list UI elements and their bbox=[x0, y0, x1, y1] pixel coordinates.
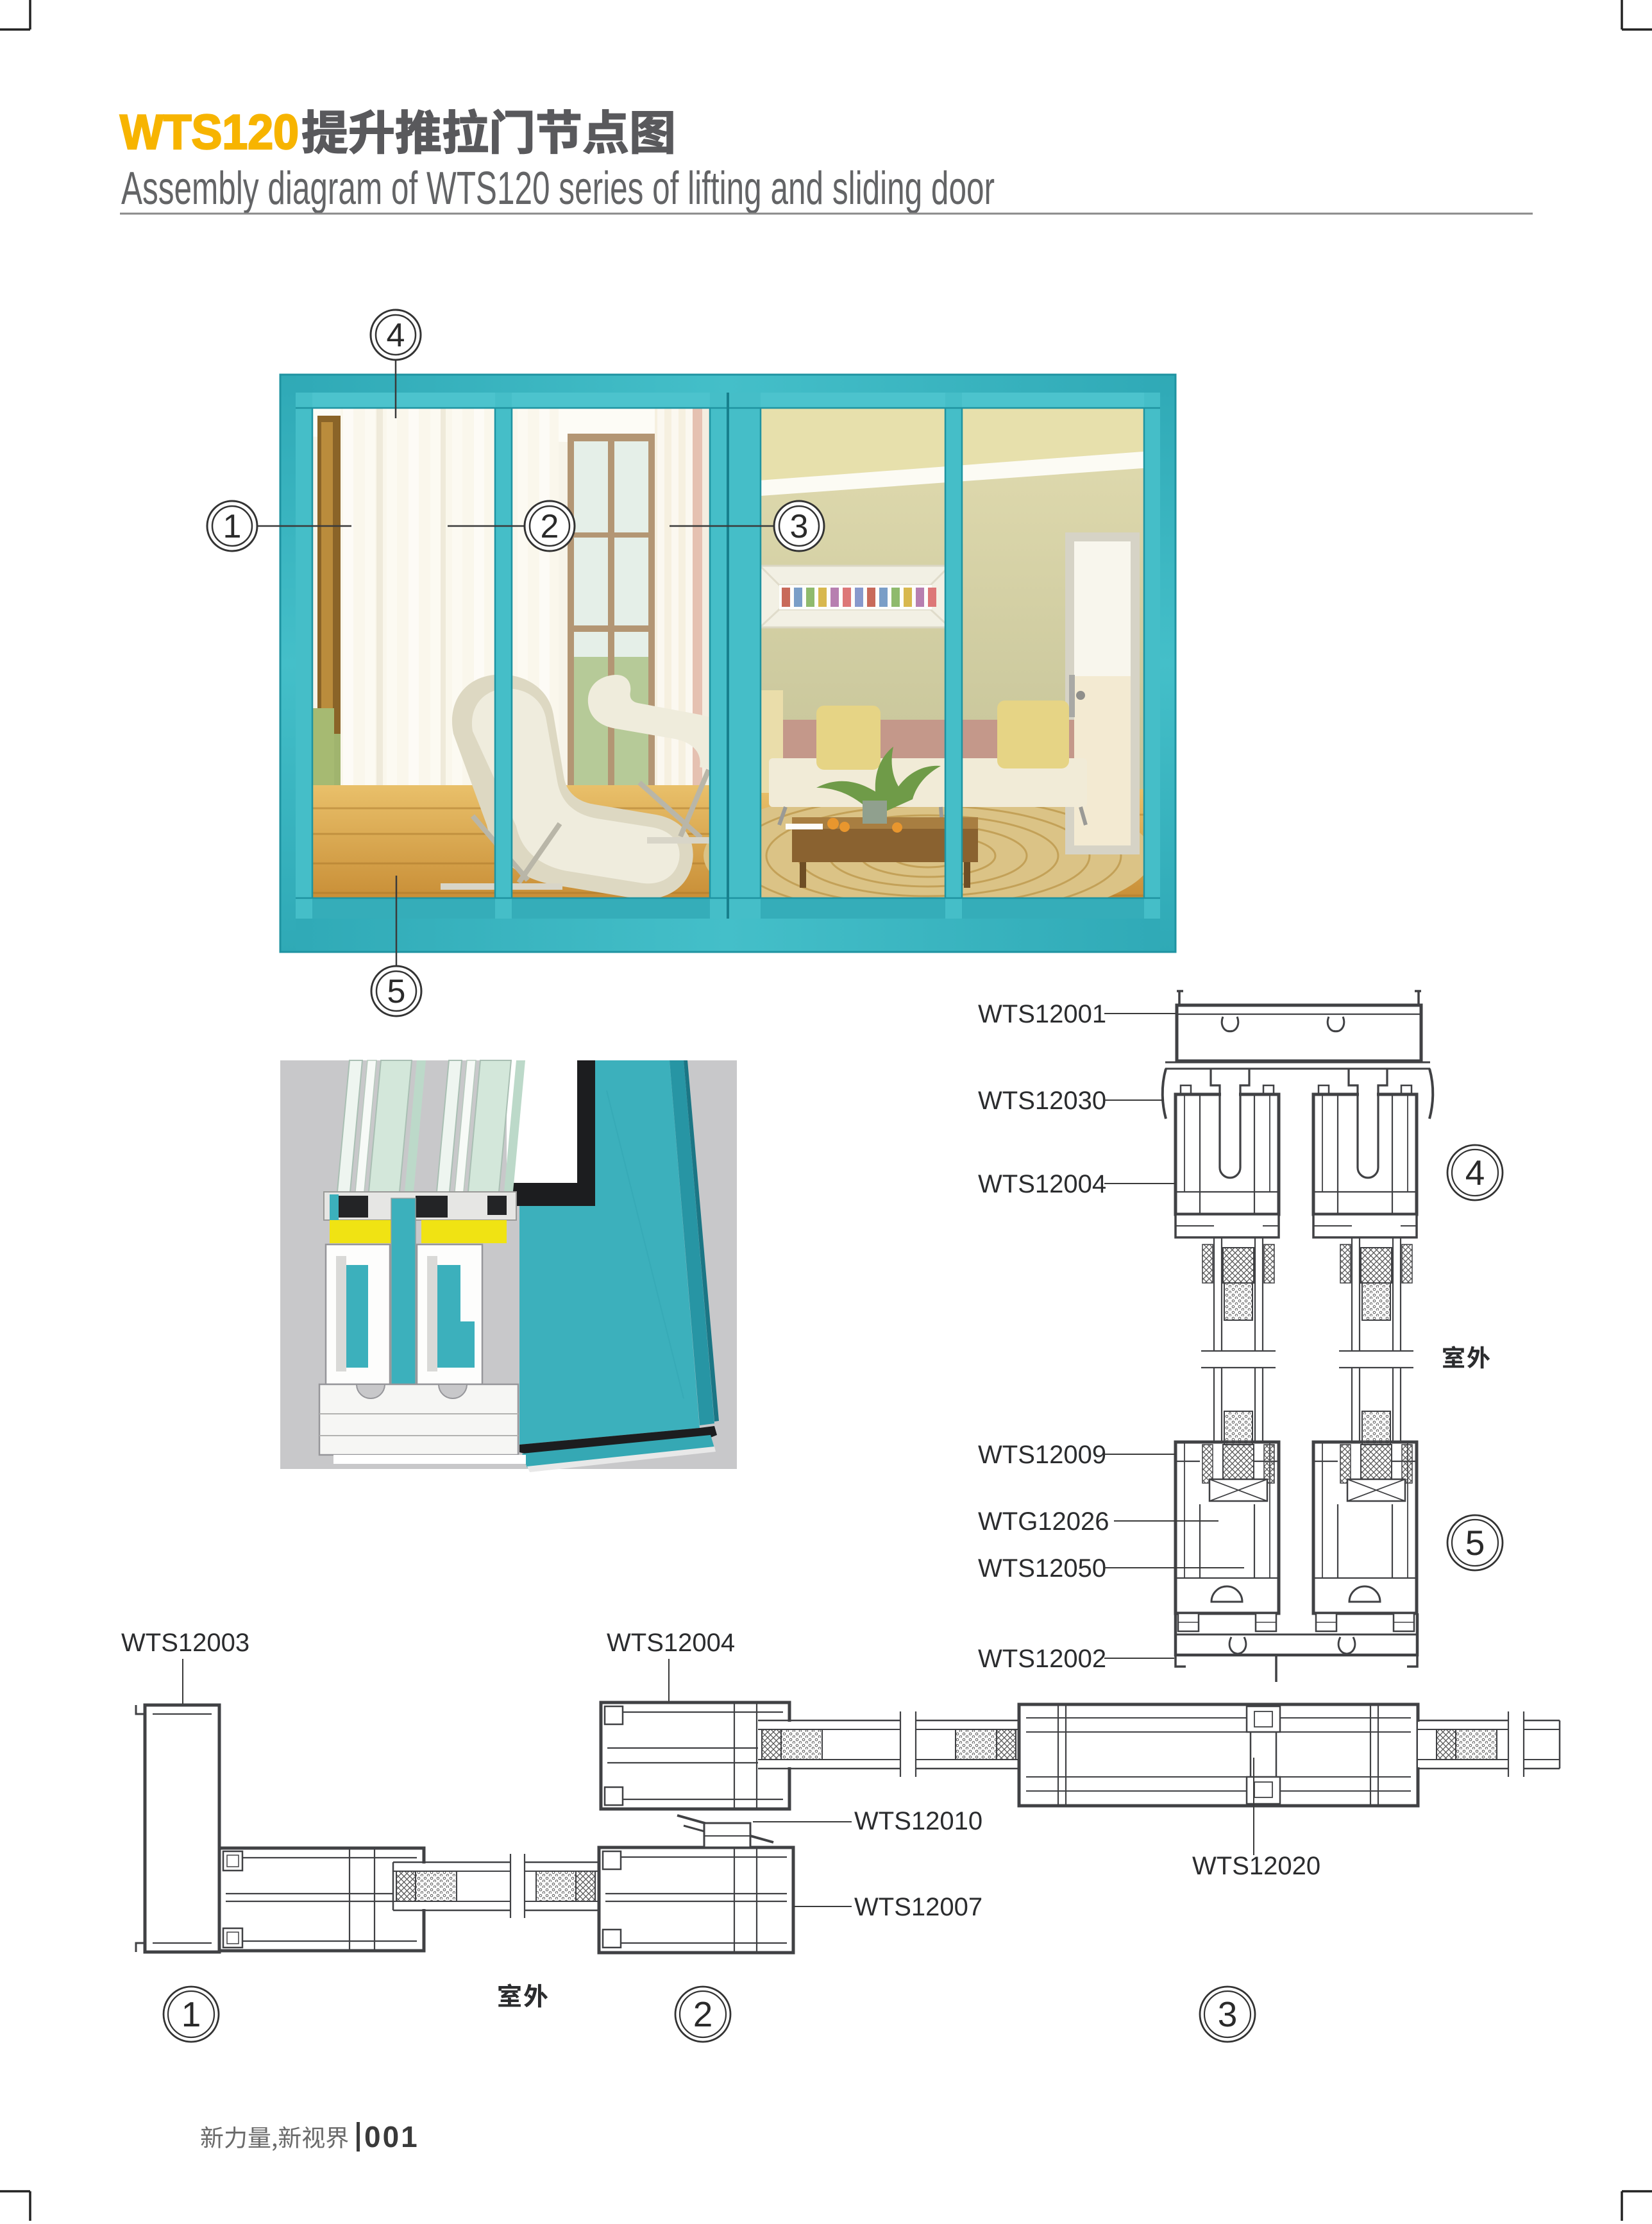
svg-text:2: 2 bbox=[693, 1994, 713, 2034]
svg-text:WTS12010: WTS12010 bbox=[854, 1807, 982, 1835]
svg-text:001: 001 bbox=[364, 2120, 419, 2153]
svg-text:2: 2 bbox=[541, 508, 559, 545]
svg-text:1: 1 bbox=[181, 1994, 201, 2034]
svg-text:WTS12030: WTS12030 bbox=[978, 1087, 1106, 1115]
svg-text:WTS12004: WTS12004 bbox=[978, 1170, 1106, 1198]
svg-text:WTS12001: WTS12001 bbox=[978, 1000, 1106, 1028]
svg-text:5: 5 bbox=[1465, 1523, 1485, 1563]
svg-text:WTS12009: WTS12009 bbox=[978, 1441, 1106, 1469]
svg-text:WTS12002: WTS12002 bbox=[978, 1645, 1106, 1673]
svg-text:WTS12007: WTS12007 bbox=[854, 1893, 982, 1921]
svg-text:1: 1 bbox=[223, 508, 242, 545]
svg-text:WTS12004: WTS12004 bbox=[607, 1629, 735, 1657]
svg-text:4: 4 bbox=[387, 317, 405, 354]
svg-text:WTS120: WTS120 bbox=[120, 105, 299, 160]
svg-text:Assembly diagram of WTS120 ser: Assembly diagram of WTS120 series of lif… bbox=[121, 163, 995, 214]
svg-text:5: 5 bbox=[387, 973, 406, 1010]
svg-text:3: 3 bbox=[1218, 1994, 1238, 2034]
svg-text:3: 3 bbox=[790, 508, 809, 545]
svg-text:WTS12003: WTS12003 bbox=[121, 1629, 249, 1657]
svg-text:WTS12050: WTS12050 bbox=[978, 1554, 1106, 1583]
svg-text:4: 4 bbox=[1465, 1153, 1485, 1193]
svg-text:WTS12020: WTS12020 bbox=[1192, 1852, 1320, 1880]
svg-text:WTG12026: WTG12026 bbox=[978, 1507, 1109, 1536]
